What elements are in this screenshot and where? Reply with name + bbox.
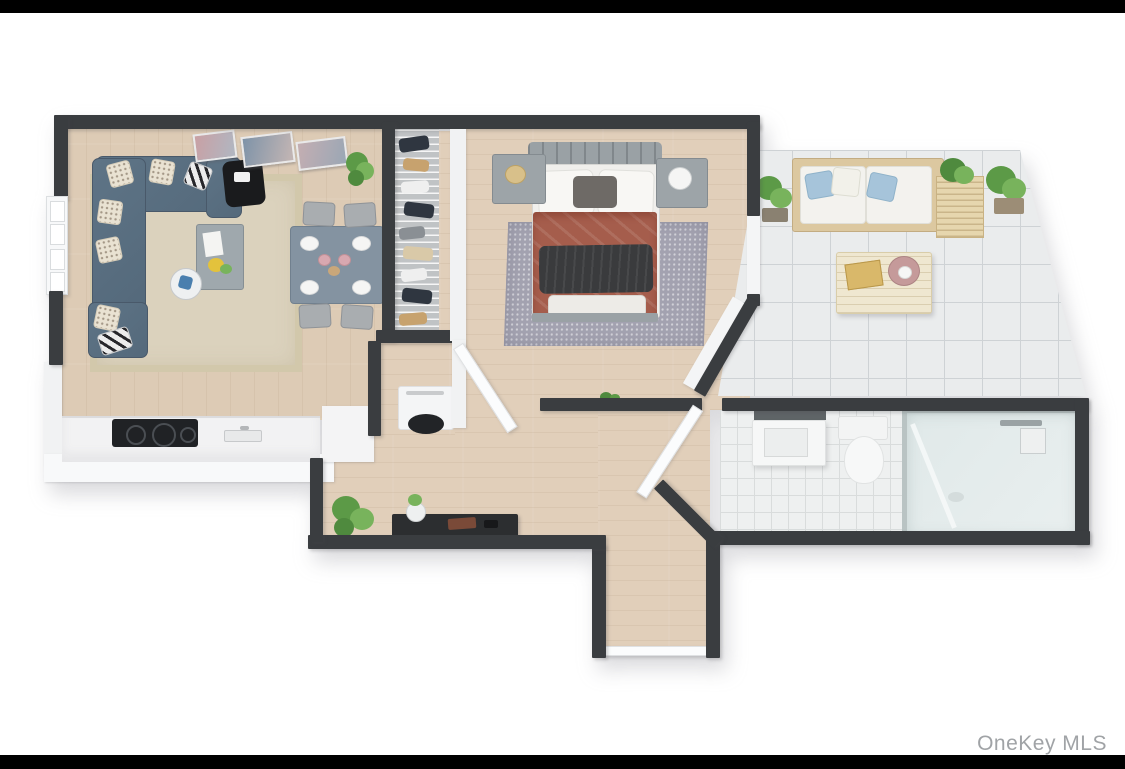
wall-left-upper	[54, 115, 68, 199]
wall-bathroom-top-left	[540, 398, 702, 411]
window-pane	[50, 224, 65, 245]
watermark: OneKey MLS	[977, 732, 1107, 756]
window-pane	[50, 201, 65, 222]
window-pane	[50, 249, 65, 270]
wall-closet-bottom	[376, 330, 456, 343]
wall-bedroom-right-upper	[747, 122, 760, 216]
open-door-bathroom	[636, 405, 703, 499]
window-pane	[50, 272, 65, 292]
wall-bathroom-top-right	[722, 398, 1088, 411]
wall-bathroom-right	[1075, 398, 1089, 544]
window	[46, 196, 68, 295]
wall-corridor-left	[592, 544, 606, 658]
wall-closet-left	[382, 122, 395, 341]
wall-diagonal-corridor	[654, 479, 723, 548]
wall-bathroom-bottom	[710, 531, 1090, 545]
wall-nook-left	[368, 341, 381, 436]
letterbox-bar-bottom	[0, 755, 1125, 769]
wall-corridor-right	[706, 538, 720, 658]
wall-hall-bottom	[308, 535, 606, 549]
wall-closet-right-white	[450, 129, 466, 341]
terrace-slider-white	[747, 216, 760, 294]
wall-top	[60, 115, 760, 129]
apartment-floor-plan	[0, 0, 1125, 769]
wall-hall-left	[310, 458, 323, 542]
floor-plan-image: OneKey MLS	[0, 0, 1125, 769]
walls	[0, 0, 1125, 769]
wall-left-lower	[49, 291, 63, 365]
letterbox-bar-top	[0, 0, 1125, 13]
